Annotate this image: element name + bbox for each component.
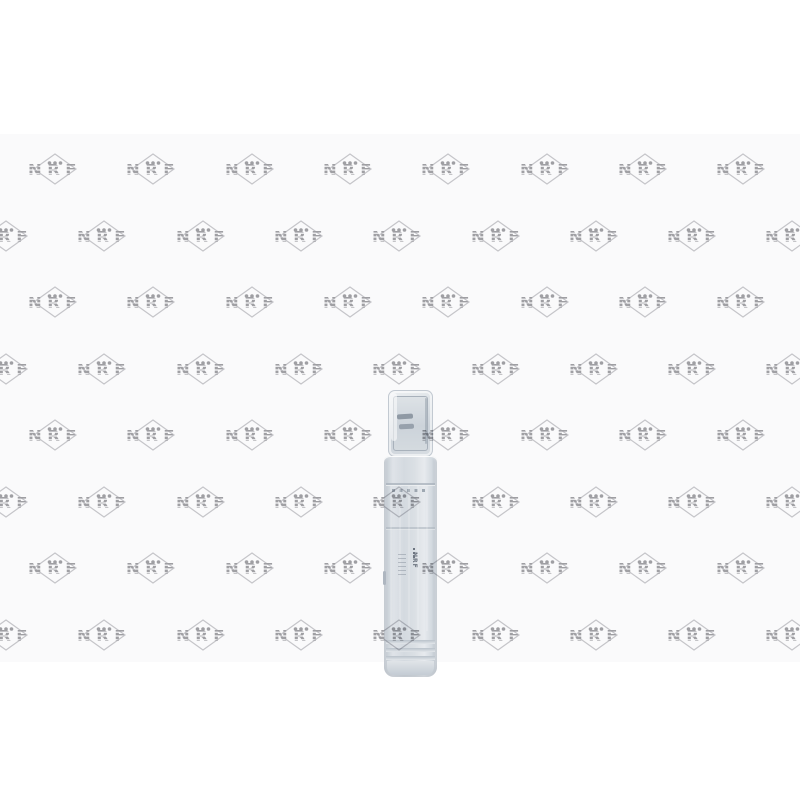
product-top-connector-block — [388, 390, 433, 457]
product-body: NRF — [384, 456, 437, 677]
printed-brand-mark: NRF — [408, 552, 419, 582]
body-ridge — [386, 648, 435, 652]
product-photo: NRF — [0, 134, 800, 662]
body-ridge — [386, 640, 435, 644]
embossed-text-lines — [398, 554, 406, 578]
product-image-heater-part: NRF — [384, 390, 437, 677]
body-ridge — [386, 656, 435, 660]
body-left-nub — [383, 571, 386, 585]
connector-rib — [425, 398, 427, 444]
connector-slot — [399, 424, 414, 430]
printed-dots — [413, 548, 415, 550]
body-bottom-cap — [387, 661, 434, 675]
product-photo-page: NRF NRF NRF — [0, 0, 800, 800]
